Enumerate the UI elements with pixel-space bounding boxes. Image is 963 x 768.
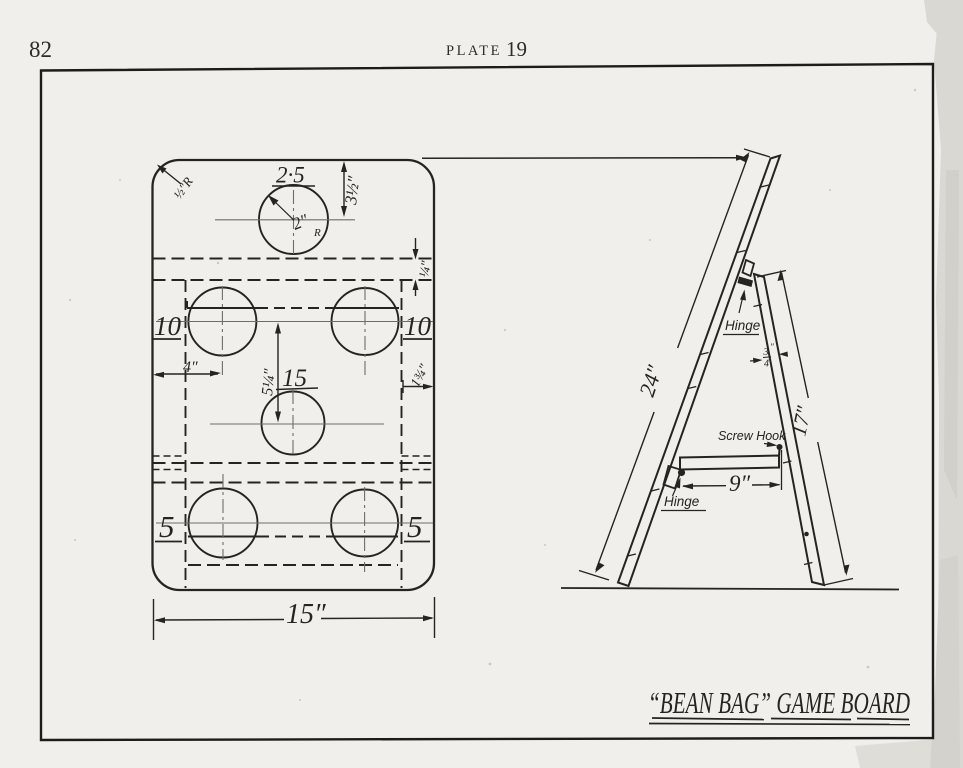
svg-text:¼″: ¼″ — [417, 260, 435, 279]
svg-text:10: 10 — [404, 311, 432, 341]
svg-text:9″: 9″ — [729, 471, 751, 496]
svg-text:Hinge: Hinge — [664, 494, 699, 509]
svg-text:“BEAN BAG” GAME BOARD: “BEAN BAG” GAME BOARD — [648, 685, 910, 720]
svg-text:R: R — [313, 227, 321, 239]
svg-text:PLATE: PLATE — [446, 43, 502, 59]
svg-text:4″: 4″ — [183, 359, 198, 376]
svg-text:5: 5 — [407, 509, 423, 544]
svg-text:″: ″ — [770, 342, 774, 352]
svg-text:15″: 15″ — [286, 599, 326, 630]
svg-text:82: 82 — [29, 37, 52, 62]
svg-text:3½″: 3½″ — [341, 174, 364, 206]
svg-text:Screw Hook: Screw Hook — [718, 429, 786, 443]
svg-text:Hinge: Hinge — [725, 318, 760, 333]
svg-text:4: 4 — [764, 359, 769, 370]
svg-text:3: 3 — [763, 347, 769, 358]
svg-text:5: 5 — [159, 509, 175, 544]
svg-text:10: 10 — [154, 311, 182, 341]
svg-text:5¼″: 5¼″ — [259, 368, 279, 397]
svg-text:19: 19 — [506, 37, 527, 61]
svg-text:2·5: 2·5 — [276, 163, 305, 188]
